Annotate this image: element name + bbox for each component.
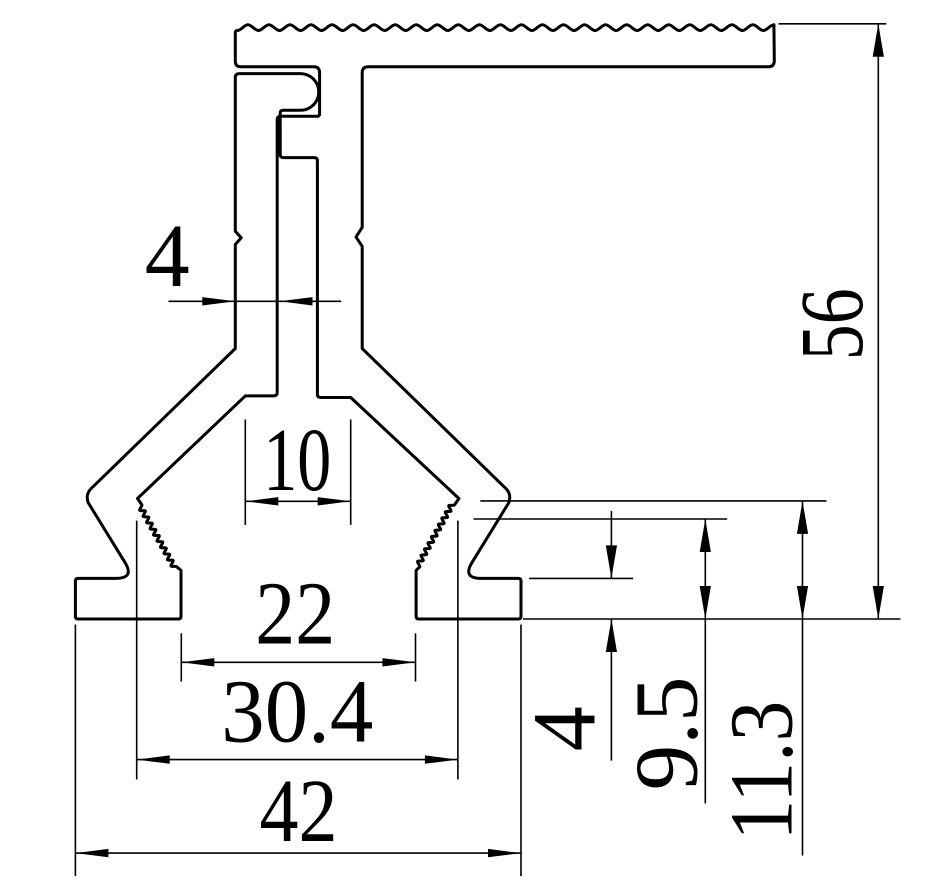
svg-text:42: 42	[260, 762, 338, 861]
svg-text:10: 10	[263, 411, 331, 510]
svg-text:9.5: 9.5	[618, 676, 717, 790]
svg-text:4: 4	[516, 706, 615, 751]
svg-text:4: 4	[145, 207, 190, 306]
svg-text:30.4: 30.4	[221, 663, 373, 762]
svg-text:56: 56	[783, 288, 882, 360]
svg-text:22: 22	[255, 565, 335, 664]
svg-text:11.3: 11.3	[713, 701, 812, 841]
